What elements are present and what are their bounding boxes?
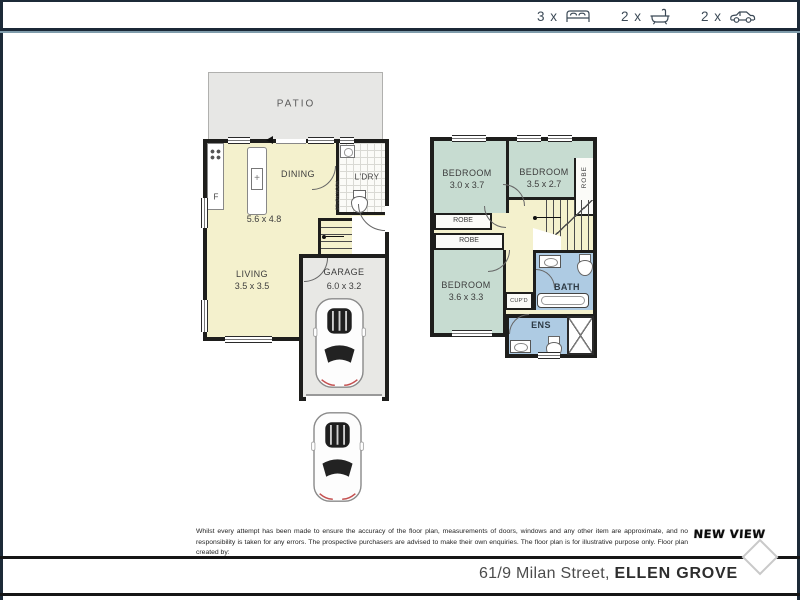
- study-nook-label: STUDY NOOK: [334, 181, 339, 211]
- ens-label: ENS: [531, 320, 551, 330]
- logo-chevron: [742, 539, 779, 576]
- bath-icon: [649, 8, 671, 25]
- cooktop-icon: [209, 148, 222, 161]
- bedroom2-dims: 3.5 x 2.7: [527, 179, 562, 189]
- bath-vanity-icon: [539, 255, 561, 268]
- bedroom2-label: BEDROOM: [519, 167, 568, 177]
- patio-label: PATIO: [277, 98, 316, 110]
- car-icon: [729, 9, 756, 24]
- bedroom3-dims: 3.6 x 3.3: [449, 292, 484, 302]
- disclaimer-text: Whilst every attempt has been made to en…: [196, 527, 688, 559]
- window: [452, 330, 492, 337]
- top-border: [0, 0, 800, 2]
- bedroom1-label: BEDROOM: [442, 168, 491, 178]
- window: [538, 352, 560, 359]
- garage-dims: 6.0 x 3.2: [327, 281, 362, 291]
- window: [308, 137, 334, 144]
- window: [548, 135, 572, 142]
- bathrooms-summary: 2 x: [621, 8, 671, 25]
- creator-logo: NEW VIEW: [692, 527, 768, 541]
- stair-arrow-line: [326, 236, 344, 237]
- ens-vanity-icon: [510, 340, 531, 353]
- living-dining-dims: 5.6 x 4.8: [247, 214, 282, 224]
- car-top-view-driveway: [311, 410, 364, 504]
- living-dims: 3.5 x 3.5: [235, 281, 270, 291]
- address-street: 61/9 Milan Street,: [479, 565, 615, 582]
- car-count: 2 x: [701, 9, 722, 24]
- bed-icon: [565, 8, 591, 24]
- window: [201, 300, 208, 332]
- dining-label: DINING: [281, 169, 315, 179]
- footer-divider-top: [0, 556, 800, 559]
- bathtub-icon: [537, 293, 589, 308]
- bedrooms-summary: 3 x: [537, 8, 591, 24]
- laundry-label: L'DRY: [355, 172, 380, 181]
- robe2-label: ROBE: [459, 237, 479, 245]
- patio-sliding-door: [276, 139, 306, 144]
- sink-icon: [251, 168, 263, 190]
- laundry-tub-icon: [340, 145, 355, 158]
- entry-door-gap: [385, 206, 389, 232]
- cupboard-label: CUP'D: [510, 298, 528, 304]
- bedroom1-dims: 3.0 x 3.7: [450, 180, 485, 190]
- window: [340, 137, 354, 144]
- bath-label: BATH: [554, 282, 580, 292]
- window: [517, 135, 541, 142]
- bedroom3-label: BEDROOM: [441, 280, 490, 290]
- bath-count: 2 x: [621, 9, 642, 24]
- bath-toilet-icon: [577, 254, 591, 274]
- robe-vertical-label: ROBE: [581, 166, 588, 188]
- property-summary-bar: 3 x 2 x 2 x: [537, 5, 756, 27]
- floor-plan-page: 3 x 2 x 2 x: [0, 0, 800, 600]
- property-address: 61/9 Milan Street, ELLEN GROVE: [479, 565, 738, 583]
- footer-divider-bottom: [0, 593, 800, 596]
- bed-count: 3 x: [537, 9, 558, 24]
- window: [201, 198, 208, 228]
- window: [225, 336, 272, 343]
- stair-arrow-line-upper: [537, 217, 561, 218]
- window: [228, 137, 250, 144]
- robe1-label: ROBE: [453, 217, 473, 225]
- living-label: LIVING: [236, 269, 268, 279]
- left-border: [0, 0, 3, 600]
- garage-door-opening: [306, 394, 382, 403]
- car-top-view-garage: [313, 296, 366, 390]
- address-suburb: ELLEN GROVE: [615, 565, 738, 582]
- shower-icon: [567, 316, 594, 355]
- garage-label: GARAGE: [324, 267, 365, 277]
- header-divider-accent: [0, 31, 800, 33]
- window: [452, 135, 486, 142]
- cars-summary: 2 x: [701, 9, 756, 24]
- door-direction-arrow: [266, 136, 273, 144]
- fridge-label: F: [214, 192, 219, 201]
